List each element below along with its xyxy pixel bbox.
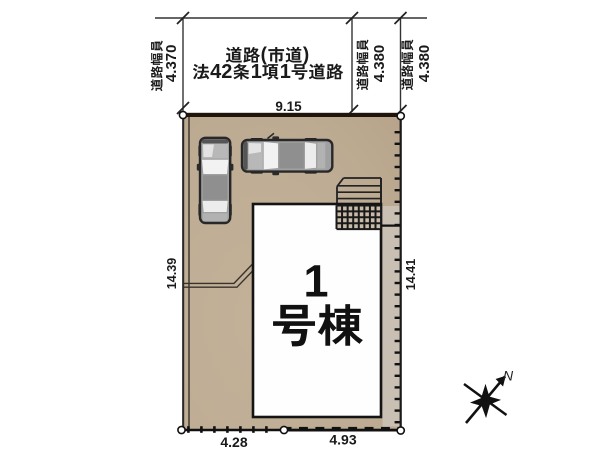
svg-text:4.380: 4.380	[371, 45, 388, 83]
svg-text:1: 1	[251, 61, 262, 83]
svg-text:9.15: 9.15	[275, 99, 302, 114]
svg-text:1: 1	[303, 256, 328, 307]
svg-text:4.380: 4.380	[416, 45, 433, 83]
svg-text:N: N	[503, 368, 514, 384]
svg-text:4.370: 4.370	[163, 45, 180, 83]
svg-text:): )	[303, 45, 309, 66]
svg-text:14.41: 14.41	[404, 259, 418, 291]
svg-text:4.93: 4.93	[329, 432, 356, 448]
svg-text:42: 42	[210, 61, 232, 83]
svg-text:14.39: 14.39	[165, 258, 179, 290]
svg-text:1: 1	[280, 61, 291, 83]
svg-text:4.28: 4.28	[220, 434, 247, 450]
